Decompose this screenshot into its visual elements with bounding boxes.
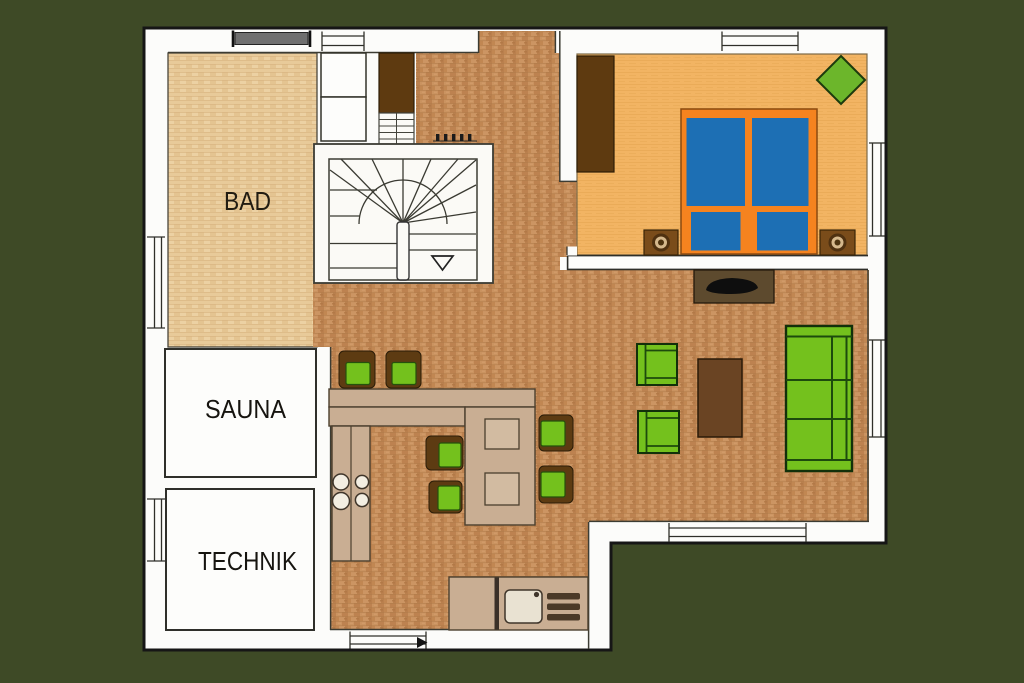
svg-text:TECHNIK: TECHNIK xyxy=(198,546,298,576)
svg-text:BAD: BAD xyxy=(224,186,271,216)
svg-text:SAUNA: SAUNA xyxy=(205,394,287,424)
